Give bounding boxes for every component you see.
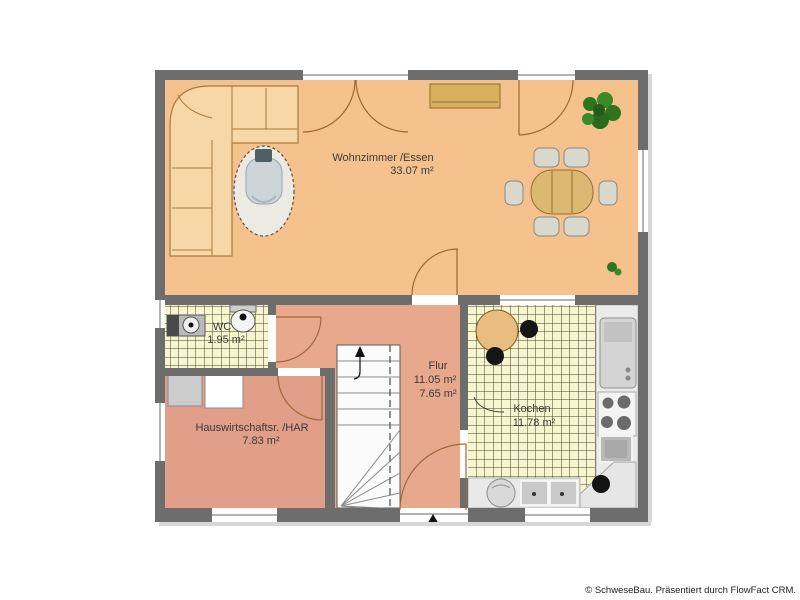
dining-chair — [534, 148, 559, 167]
fridge — [600, 318, 636, 388]
floorplan-page: Wohnzimmer /Essen 33.07 m² WC 1.95 m² Fl… — [0, 0, 800, 600]
dishwasher — [487, 479, 515, 507]
oven — [600, 436, 632, 462]
area-living: 33.07 m² — [390, 165, 434, 177]
shadow-right — [648, 74, 652, 522]
dining-table — [531, 170, 593, 214]
area-kitchen: 11.78 m² — [513, 417, 556, 429]
area-hall-2: 7.65 m² — [419, 388, 457, 400]
dining-chair — [505, 181, 523, 205]
utility-door-opening — [278, 368, 320, 376]
hall-living-door-opening — [412, 295, 458, 305]
label-utility: Hauswirtschaftsr. /HAR — [195, 422, 308, 434]
label-wc: WC — [213, 321, 231, 333]
wc-sink — [167, 315, 205, 336]
label-hall: Flur — [429, 360, 448, 372]
label-kitchen: Kochen — [513, 403, 550, 415]
dining-chair — [534, 217, 559, 236]
utility-cabinet — [205, 373, 243, 408]
kitchen-table — [476, 310, 518, 352]
stairs — [337, 345, 400, 508]
wc-door-opening — [268, 315, 276, 362]
area-wc: 1.95 m² — [207, 334, 245, 346]
area-utility: 7.83 m² — [242, 435, 280, 447]
dining-chair — [564, 217, 589, 236]
cooktop — [598, 392, 636, 436]
area-hall-1: 11.05 m² — [414, 374, 457, 386]
sideboard — [430, 84, 500, 108]
toilet — [230, 305, 256, 332]
label-living: Wohnzimmer /Essen — [332, 152, 433, 164]
kitchen-door-opening — [460, 430, 468, 478]
dining-chair — [599, 181, 617, 205]
kitchen-chair — [520, 320, 538, 338]
shadow-bottom — [159, 522, 651, 526]
credit-text: © SchweseBau. Präsentiert durch FlowFact… — [585, 585, 796, 596]
kitchen-chair — [486, 347, 504, 365]
washer — [168, 374, 202, 406]
dining-chair — [564, 148, 589, 167]
floorplan-image: Wohnzimmer /Essen 33.07 m² WC 1.95 m² Fl… — [0, 0, 800, 600]
